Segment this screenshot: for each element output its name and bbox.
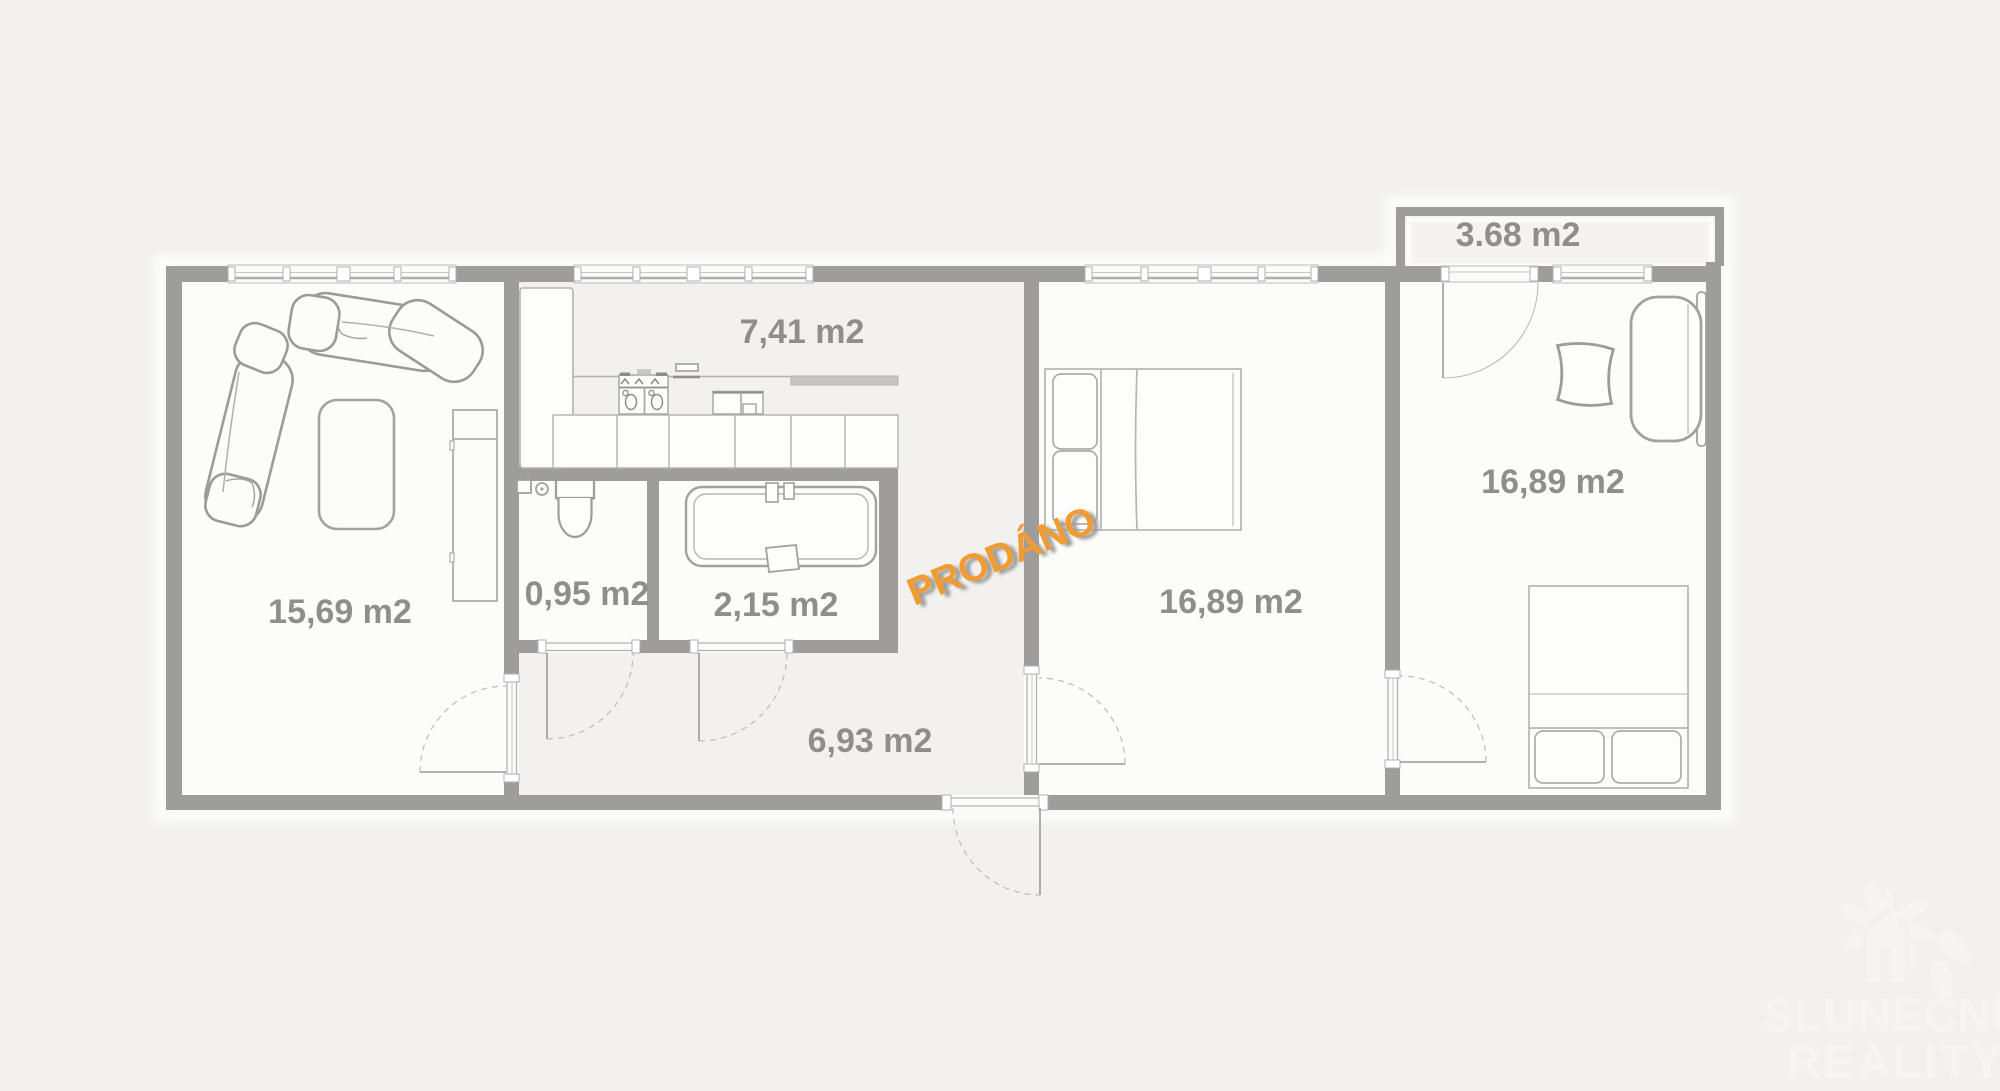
svg-text:6,93 m2: 6,93 m2 <box>808 722 933 760</box>
svg-text:3.68 m2: 3.68 m2 <box>1456 216 1581 254</box>
svg-text:16,89 m2: 16,89 m2 <box>1481 463 1625 501</box>
svg-text:SLUNEČNÍ: SLUNEČNÍ <box>1762 989 2000 1041</box>
svg-text:2,15 m2: 2,15 m2 <box>714 586 839 624</box>
svg-text:15,69 m2: 15,69 m2 <box>268 593 412 631</box>
svg-text:16,89 m2: 16,89 m2 <box>1159 583 1303 621</box>
svg-text:0,95 m2: 0,95 m2 <box>525 575 650 613</box>
svg-text:REALITY: REALITY <box>1787 1035 2000 1087</box>
svg-text:7,41 m2: 7,41 m2 <box>740 313 865 351</box>
